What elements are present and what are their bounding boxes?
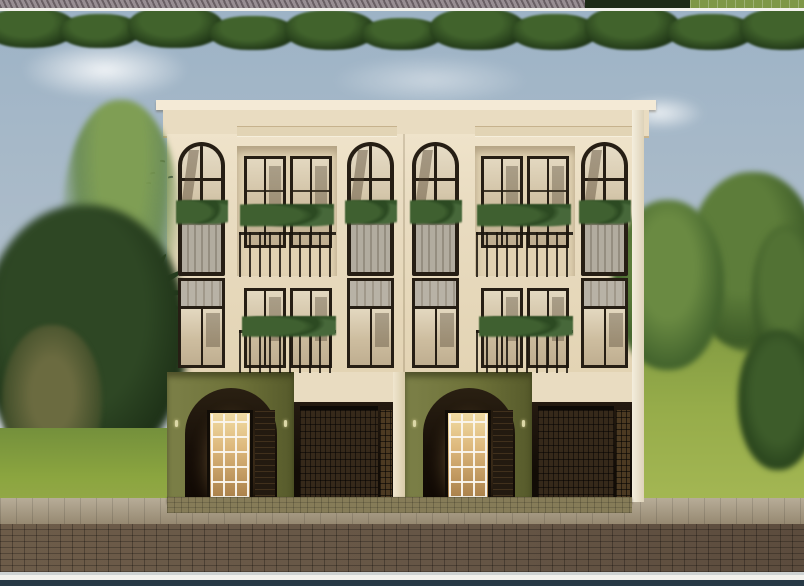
window <box>178 306 225 368</box>
entry-side-screen <box>493 410 513 502</box>
teal-border-strip <box>0 580 804 586</box>
brick-road <box>0 524 804 572</box>
window-shade <box>178 278 225 306</box>
party-wall-pilaster <box>393 372 405 502</box>
hedge-bush <box>430 8 525 35</box>
balcony-plants <box>242 316 336 342</box>
garage-side-lattice <box>380 410 392 502</box>
window <box>581 306 628 368</box>
balcony-railing <box>476 232 573 277</box>
garage-roller-door <box>538 406 614 502</box>
door-muntins <box>449 414 487 498</box>
white-border-line <box>0 8 804 11</box>
parapet-recess-panel <box>475 126 632 137</box>
window-shade <box>581 278 628 306</box>
wall-sconce <box>175 420 178 427</box>
driveway-pavers <box>167 497 632 513</box>
rendering-canvas <box>0 0 804 586</box>
balcony-plants <box>176 200 228 230</box>
window-shade <box>412 278 459 306</box>
cloud <box>20 40 190 100</box>
garage-beam <box>532 372 632 405</box>
adjacent-grass-sliver <box>690 0 804 8</box>
entry-side-screen <box>255 410 275 502</box>
balcony-plants <box>579 200 631 230</box>
top-border-adjacent-image <box>0 0 804 8</box>
wall-sconce <box>413 420 416 427</box>
garage-beam <box>294 372 393 405</box>
adjacent-roof-sliver <box>0 0 585 8</box>
window-shade <box>347 278 394 306</box>
wall-sconce <box>284 420 287 427</box>
garage-side-lattice <box>616 410 630 502</box>
wall-sconce <box>522 420 525 427</box>
cloud <box>330 55 530 105</box>
balcony-railing <box>239 232 336 277</box>
party-wall-line <box>403 134 405 374</box>
side-wall-return <box>632 110 644 502</box>
adjacent-tree-sliver <box>585 0 690 8</box>
balcony-plants <box>345 200 397 230</box>
balcony-plants <box>240 204 334 232</box>
parapet-recess-panel <box>237 126 397 137</box>
door-muntins <box>211 414 249 498</box>
window <box>412 306 459 368</box>
balcony-plants <box>477 204 571 232</box>
paver-texture <box>0 524 804 572</box>
parapet-cap <box>156 100 656 110</box>
garage-roller-door <box>300 406 378 502</box>
entry-glass-door <box>207 410 253 502</box>
balcony-plants <box>410 200 462 230</box>
window <box>347 306 394 368</box>
tree <box>738 330 804 470</box>
balcony-plants <box>479 316 573 342</box>
entry-glass-door <box>445 410 491 502</box>
